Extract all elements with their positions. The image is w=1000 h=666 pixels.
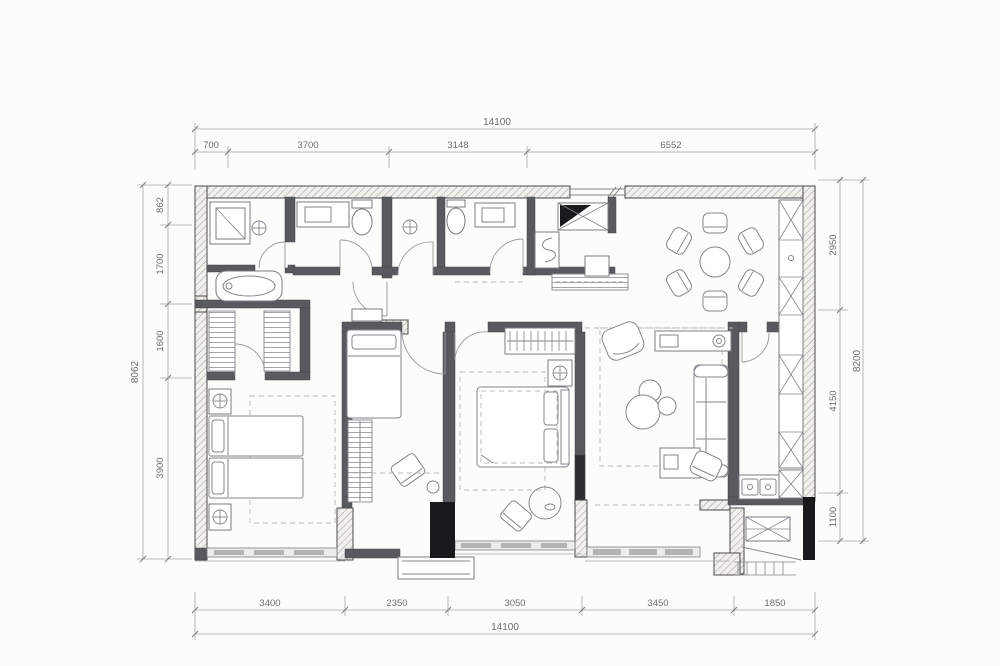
hallway-bench (352, 309, 382, 321)
dim-left-seg-3: 3900 (155, 457, 166, 478)
door-master-bedroom (455, 332, 488, 360)
dim-right-seg-1: 4150 (828, 390, 839, 411)
dim-right-seg-0: 2950 (828, 234, 839, 255)
exterior-wall-top-left (195, 186, 570, 198)
duct-shaft (558, 203, 608, 230)
floor-plan-drawing: 14100 700 3700 3148 6552 3400 2350 305 (0, 0, 1000, 666)
structural-columns (430, 502, 455, 558)
structural-column-balcony (803, 497, 815, 560)
dimension-bottom: 3400 2350 3050 3450 1850 14100 (192, 592, 818, 640)
dining-chair (736, 226, 765, 257)
double-bed (477, 387, 569, 467)
toilet-main (352, 200, 372, 235)
exterior-wall-right (803, 186, 815, 501)
dim-top-total: 14100 (483, 117, 511, 128)
double-vanity (739, 475, 779, 499)
twin-bed-1 (209, 416, 303, 456)
floor-drain-icon (252, 221, 266, 235)
dim-bottom-seg-2: 3050 (504, 598, 525, 609)
single-bed (347, 330, 401, 418)
vanity-guest (475, 203, 515, 227)
dimension-left: 862 1700 1600 3900 8062 (130, 182, 192, 562)
dim-right-seg-2: 1100 (828, 507, 839, 527)
dim-bottom-seg-0: 3400 (259, 598, 280, 609)
corner-shower (210, 202, 250, 244)
door-shower-room (398, 242, 433, 275)
dimension-right: 2950 4150 1100 8200 (818, 177, 869, 544)
dim-bottom-seg-1: 2350 (386, 598, 407, 609)
walk-in-closet (209, 311, 290, 371)
dining-chair (736, 268, 765, 299)
dim-right-total: 8200 (852, 349, 863, 372)
dim-bottom-seg-4: 1850 (764, 598, 785, 609)
dining-chair (703, 291, 727, 311)
door-bedroom-2 (402, 332, 445, 374)
living-room (585, 319, 733, 483)
column-living-south-east (700, 500, 730, 510)
twin-bedroom (209, 389, 335, 530)
entry-closet (535, 232, 559, 268)
lounge-chair-master (499, 499, 533, 533)
closet-shelves-left (209, 311, 235, 371)
dim-top-seg-3: 6552 (660, 140, 681, 151)
window-living-room (585, 505, 730, 561)
dim-top-seg-2: 3148 (447, 140, 468, 151)
dining-chair (703, 213, 727, 233)
tall-cabinet-column (779, 200, 803, 498)
master-bedroom (460, 328, 575, 533)
desk-chair-bedroom-2 (390, 452, 427, 488)
vanity-main (297, 202, 349, 227)
windows (195, 505, 730, 579)
bay-window (398, 557, 474, 579)
exterior-wall-left (195, 186, 207, 560)
dim-bottom-total: 14100 (491, 622, 519, 633)
nightstand-master (548, 360, 572, 386)
armchair-living (599, 319, 646, 363)
wardrobe-bedroom-2 (348, 420, 372, 502)
dim-left-seg-1: 1700 (155, 253, 166, 274)
exterior-wall-top-right (625, 186, 815, 198)
toilet-guest (447, 200, 465, 234)
stool-bedroom-2 (427, 481, 439, 493)
side-table-master (529, 487, 561, 519)
entry-threshold (570, 187, 625, 197)
structural-column-bedroom2 (430, 502, 455, 558)
floor-plan-canvas: 14100 700 3700 3148 6552 3400 2350 305 (0, 0, 1000, 666)
door-closet (235, 344, 265, 376)
column-terrace-edge (714, 553, 740, 575)
dim-left-total: 8062 (130, 360, 141, 383)
closet-shelves-right (264, 311, 290, 371)
balcony-edge (742, 547, 801, 560)
ac-unit (746, 517, 790, 541)
dining-chair (664, 226, 693, 257)
dining-table (700, 247, 730, 277)
dim-left-seg-2: 1600 (155, 330, 166, 351)
door-guest-bath (490, 239, 523, 273)
door-master-bath (742, 332, 769, 362)
bathtub (216, 271, 282, 301)
dimension-top: 14100 700 3700 3148 6552 (192, 117, 818, 170)
floor-drain-icon (403, 220, 417, 234)
balcony (734, 497, 815, 575)
guest-bathroom (403, 200, 515, 234)
door-wc-main (340, 240, 372, 267)
column-living-south-west (575, 500, 587, 557)
dim-top-seg-1: 3700 (297, 140, 318, 151)
nightstand-twin-south (209, 504, 231, 530)
nightstand-twin-north (209, 389, 231, 414)
twin-bed-2 (209, 458, 303, 498)
doors (235, 239, 769, 376)
dim-left-seg-0: 862 (155, 197, 166, 213)
door-bath-main-inner (259, 242, 285, 268)
window-master-bedroom (448, 541, 582, 554)
bedroom-2 (347, 330, 440, 502)
coffee-tables (626, 380, 676, 429)
media-console (655, 331, 731, 351)
dim-top-seg-0: 700 (203, 140, 219, 151)
window-twin-bedroom (195, 548, 345, 561)
wardrobe-master (505, 328, 575, 354)
dining-chair (664, 268, 693, 299)
dim-bottom-seg-3: 3450 (647, 598, 668, 609)
